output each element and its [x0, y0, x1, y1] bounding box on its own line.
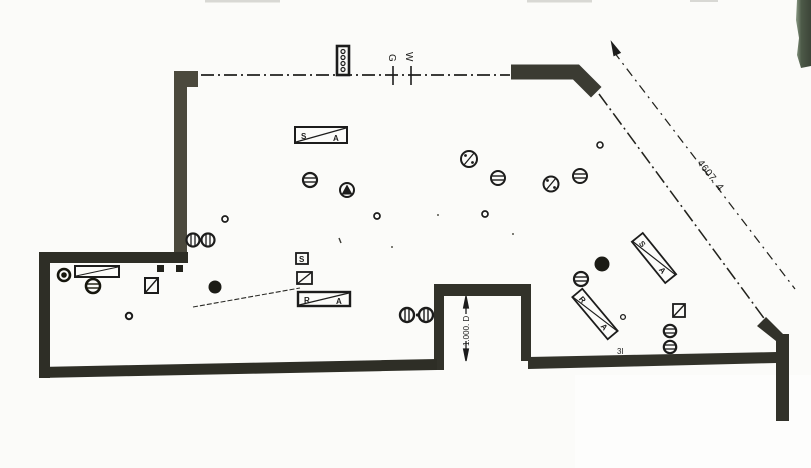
svg-text:A: A: [333, 134, 339, 143]
svg-text:S: S: [299, 255, 305, 264]
svg-text:1.000. D: 1.000. D: [462, 316, 471, 346]
svg-text:3I: 3I: [617, 347, 624, 356]
svg-text:A: A: [336, 297, 342, 306]
svg-text:W: W: [403, 52, 414, 62]
svg-text:R: R: [304, 296, 310, 305]
svg-text:S: S: [301, 132, 307, 141]
svg-text:G: G: [386, 54, 397, 62]
